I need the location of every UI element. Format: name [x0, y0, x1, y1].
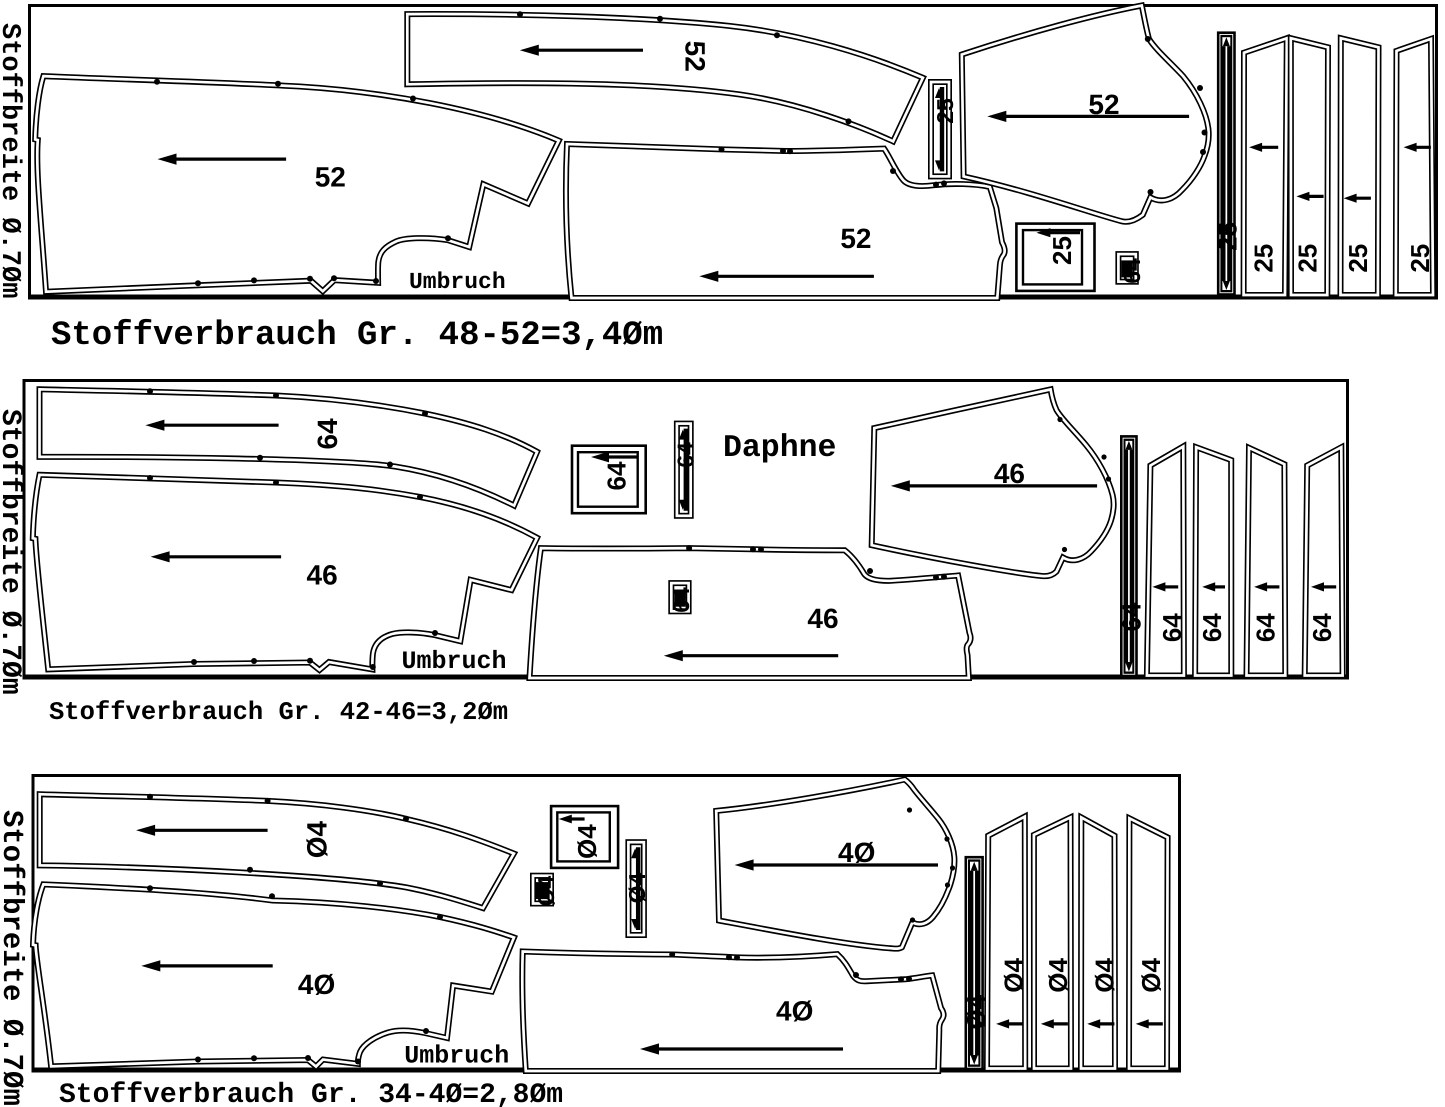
svg-text:25: 25	[1292, 244, 1322, 273]
svg-text:Ø4: Ø4	[1043, 958, 1073, 993]
svg-text:52: 52	[840, 223, 871, 254]
svg-text:Ø4: Ø4	[624, 872, 650, 903]
svg-text:25: 25	[1249, 244, 1279, 273]
svg-text:Umbruch: Umbruch	[402, 647, 507, 676]
svg-text:Ø4: Ø4	[1090, 958, 1120, 993]
svg-text:Ø4: Ø4	[572, 824, 602, 859]
svg-text:25: 25	[1343, 244, 1373, 273]
svg-text:46: 46	[307, 560, 338, 591]
svg-text:Umbruch: Umbruch	[409, 269, 506, 295]
svg-text:46: 46	[994, 458, 1025, 489]
svg-text:64: 64	[1157, 613, 1187, 642]
svg-text:4Ø: 4Ø	[298, 969, 335, 1000]
svg-text:64: 64	[1197, 613, 1227, 642]
svg-text:Ø4: Ø4	[533, 875, 559, 906]
svg-text:64: 64	[1117, 602, 1147, 631]
svg-text:Daphne: Daphne	[723, 431, 836, 466]
svg-text:4Ø: 4Ø	[838, 837, 875, 868]
svg-text:25: 25	[932, 98, 958, 124]
svg-text:Ø4: Ø4	[1136, 958, 1166, 993]
svg-text:25: 25	[1213, 222, 1243, 251]
svg-text:Stoffbreite Ø.7Øm: Stoffbreite Ø.7Øm	[0, 23, 24, 298]
svg-text:Ø4: Ø4	[302, 821, 333, 859]
svg-text:64: 64	[673, 442, 699, 468]
svg-text:25: 25	[1047, 236, 1077, 265]
svg-text:64: 64	[312, 418, 343, 450]
svg-text:64: 64	[602, 461, 632, 490]
svg-text:64: 64	[668, 587, 694, 613]
svg-text:Umbruch: Umbruch	[404, 1042, 509, 1071]
svg-text:Stoffverbrauch Gr. 34-4Ø=2,8Øm: Stoffverbrauch Gr. 34-4Ø=2,8Øm	[59, 1080, 563, 1107]
svg-text:Stoffbreite Ø.7Øm: Stoffbreite Ø.7Øm	[0, 810, 28, 1106]
svg-text:64: 64	[1250, 613, 1280, 642]
svg-text:64: 64	[1119, 258, 1145, 284]
svg-text:52: 52	[679, 41, 710, 72]
svg-text:25: 25	[1405, 244, 1435, 273]
svg-text:46: 46	[807, 603, 838, 634]
svg-text:4Ø: 4Ø	[776, 995, 813, 1026]
svg-text:52: 52	[315, 161, 346, 192]
svg-text:64: 64	[1307, 613, 1337, 642]
svg-text:Stoffverbrauch Gr. 48-52=3,4Øm: Stoffverbrauch Gr. 48-52=3,4Øm	[51, 317, 663, 355]
svg-text:Stoffverbrauch Gr. 42-46=3,2Øm: Stoffverbrauch Gr. 42-46=3,2Øm	[49, 698, 508, 727]
svg-text:Stoffbreite Ø.7Øm: Stoffbreite Ø.7Øm	[0, 409, 25, 695]
svg-text:52: 52	[1088, 89, 1119, 120]
svg-text:Ø4: Ø4	[999, 958, 1029, 993]
